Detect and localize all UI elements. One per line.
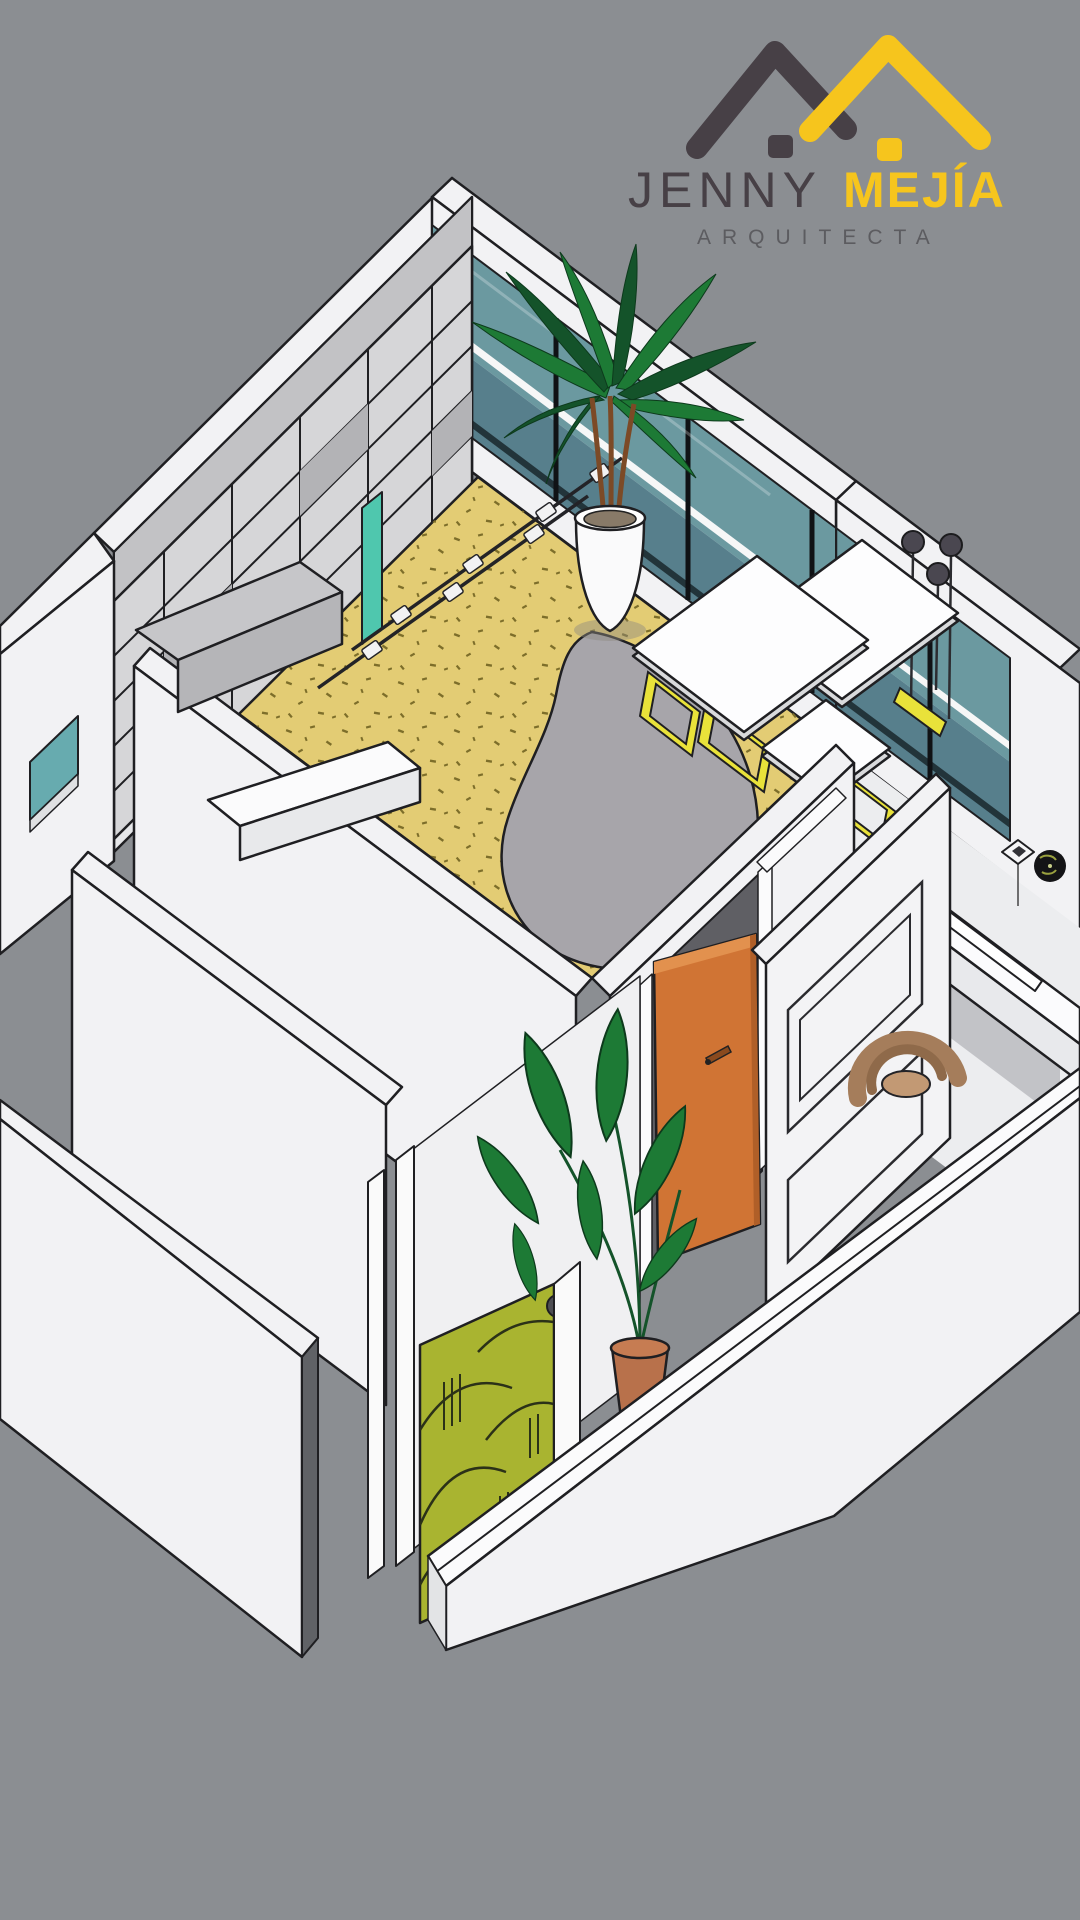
floorplan-illustration: JENNY MEJÍA ARQUITECTA [0,0,1080,1920]
wall-plate-decor [1034,850,1066,882]
leaning-mirror [362,492,382,644]
wall-cut-edge [302,1338,318,1657]
brand-first-name: JENNY [628,162,822,218]
brand-last-name: MEJÍA [843,162,1006,218]
orange-door [654,934,760,1262]
poster-canvas: JENNY MEJÍA ARQUITECTA [0,0,1080,1920]
brand-tagline: ARQUITECTA [697,226,941,249]
